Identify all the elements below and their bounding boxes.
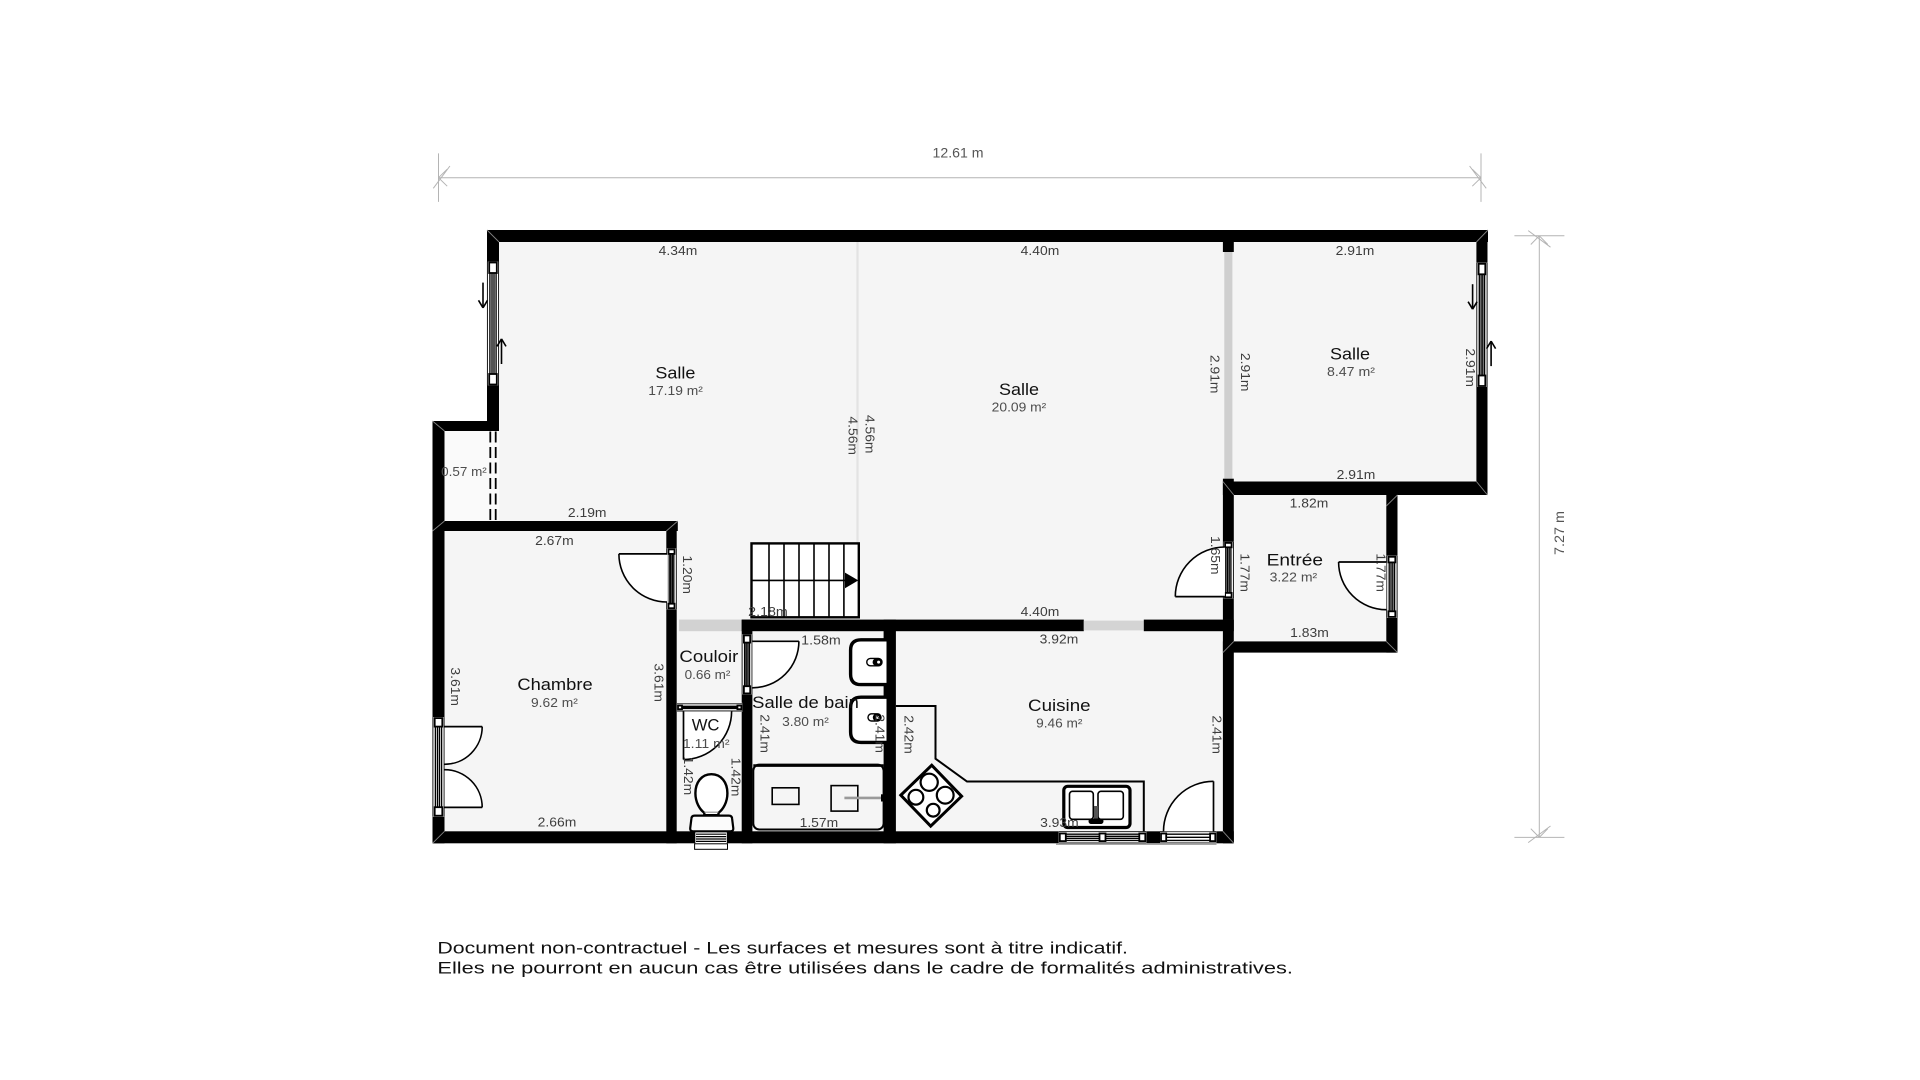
svg-text:Couloir: Couloir <box>679 647 738 666</box>
svg-text:2.66m: 2.66m <box>538 815 577 830</box>
svg-text:2.91m: 2.91m <box>1208 355 1223 394</box>
svg-text:2.19m: 2.19m <box>568 505 607 520</box>
svg-text:2.67m: 2.67m <box>535 533 574 548</box>
svg-text:1.57m: 1.57m <box>800 815 839 830</box>
svg-text:1.58m: 1.58m <box>801 632 841 647</box>
svg-text:1.65m: 1.65m <box>1208 536 1223 575</box>
svg-text:7.27 m: 7.27 m <box>1552 511 1567 555</box>
svg-text:1.20m: 1.20m <box>680 555 695 594</box>
svg-text:Entrée: Entrée <box>1267 550 1323 569</box>
svg-text:1.77m: 1.77m <box>1374 553 1389 592</box>
svg-text:2.91m: 2.91m <box>1238 353 1253 392</box>
svg-text:17.19 m²: 17.19 m² <box>648 383 703 398</box>
svg-text:2.41m: 2.41m <box>873 714 888 753</box>
svg-text:Elles ne pourront en aucun cas: Elles ne pourront en aucun cas être util… <box>437 958 1293 977</box>
svg-text:2.91m: 2.91m <box>1463 348 1478 387</box>
svg-text:1.11 m²: 1.11 m² <box>683 736 730 751</box>
svg-text:1.42m: 1.42m <box>681 757 696 796</box>
svg-text:3.93m: 3.93m <box>1040 815 1079 830</box>
svg-text:12.61 m: 12.61 m <box>933 146 984 161</box>
svg-text:20.09 m²: 20.09 m² <box>992 399 1047 414</box>
svg-text:3.61m: 3.61m <box>651 663 666 702</box>
svg-text:Salle: Salle <box>999 380 1039 399</box>
svg-text:3.80 m²: 3.80 m² <box>782 714 829 729</box>
svg-text:3.92m: 3.92m <box>1040 632 1079 647</box>
svg-text:9.62 m²: 9.62 m² <box>531 695 579 710</box>
svg-text:0.66 m²: 0.66 m² <box>685 667 731 682</box>
svg-text:2.91m: 2.91m <box>1337 467 1376 482</box>
svg-text:Cuisine: Cuisine <box>1028 696 1091 715</box>
svg-text:2.41m: 2.41m <box>1210 715 1225 754</box>
svg-text:3.22 m²: 3.22 m² <box>1270 570 1318 585</box>
svg-text:Salle: Salle <box>655 363 695 382</box>
svg-text:1.77m: 1.77m <box>1237 553 1252 592</box>
svg-text:WC: WC <box>692 716 720 735</box>
svg-text:2.91m: 2.91m <box>1336 243 1375 258</box>
svg-text:2.18m: 2.18m <box>748 604 788 619</box>
svg-text:2.42m: 2.42m <box>901 715 916 754</box>
svg-text:Salle de bain: Salle de bain <box>752 693 859 712</box>
svg-text:1.82m: 1.82m <box>1290 496 1329 511</box>
svg-text:1.42m: 1.42m <box>729 758 744 797</box>
svg-text:Document non-contractuel - Les: Document non-contractuel - Les surfaces … <box>437 939 1128 958</box>
svg-text:4.40m: 4.40m <box>1021 604 1060 619</box>
svg-text:4.40m: 4.40m <box>1021 243 1060 258</box>
svg-text:Salle: Salle <box>1330 344 1370 363</box>
svg-text:3.61m: 3.61m <box>448 667 463 706</box>
svg-text:8.47 m²: 8.47 m² <box>1327 364 1376 379</box>
svg-text:4.56m: 4.56m <box>863 415 878 454</box>
svg-text:0.57 m²: 0.57 m² <box>441 464 487 479</box>
svg-text:2.41m: 2.41m <box>757 714 772 753</box>
svg-text:9.46 m²: 9.46 m² <box>1036 716 1083 731</box>
svg-text:4.34m: 4.34m <box>659 243 698 258</box>
svg-text:4.56m: 4.56m <box>846 416 861 455</box>
svg-text:1.83m: 1.83m <box>1290 625 1329 640</box>
svg-text:Chambre: Chambre <box>517 675 592 694</box>
